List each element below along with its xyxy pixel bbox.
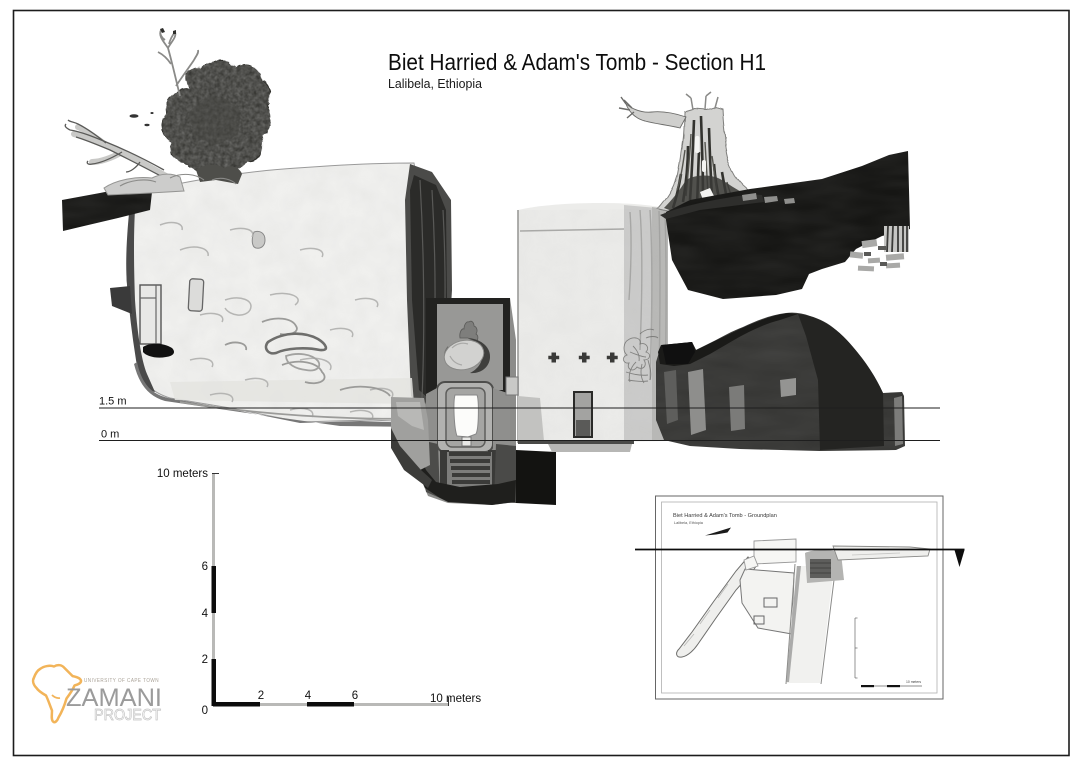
svg-text:Biet Harried & Adam's Tomb - G: Biet Harried & Adam's Tomb - Groundplan [673, 513, 777, 519]
svg-text:4: 4 [202, 608, 209, 620]
svg-text:10 meters: 10 meters [157, 468, 208, 480]
svg-text:6: 6 [202, 561, 208, 573]
svg-text:2: 2 [258, 690, 264, 702]
svg-text:Lalibela, Ethiopia: Lalibela, Ethiopia [388, 76, 483, 91]
svg-text:2: 2 [202, 654, 208, 666]
svg-text:1.5 m: 1.5 m [99, 396, 127, 408]
svg-text:PROJECT: PROJECT [94, 707, 161, 724]
svg-text:10 meters: 10 meters [430, 693, 481, 705]
svg-text:Lalibela, Ethiopia: Lalibela, Ethiopia [674, 521, 704, 525]
svg-text:0 m: 0 m [101, 429, 119, 441]
svg-text:0: 0 [202, 705, 208, 717]
svg-text:10 meters: 10 meters [906, 680, 921, 684]
svg-text:4: 4 [305, 690, 312, 702]
svg-text:Biet Harried & Adam's Tomb - S: Biet Harried & Adam's Tomb - Section H1 [388, 49, 766, 75]
svg-text:6: 6 [352, 690, 358, 702]
